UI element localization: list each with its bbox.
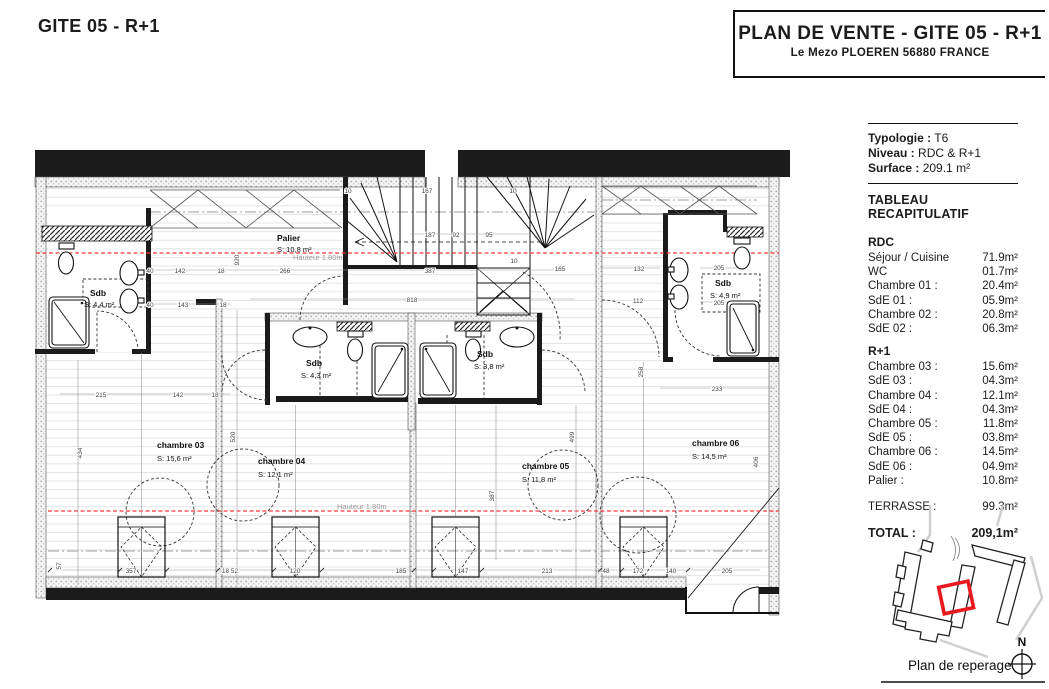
row-value: 01.7m²: [982, 265, 1018, 279]
divider: [868, 123, 1018, 124]
washbasin-icon: [293, 327, 327, 348]
row-label: Séjour / Cuisine: [868, 251, 949, 265]
dim-label: 266: [280, 268, 291, 275]
room-area-sdb3: S: 3,8 m²: [474, 362, 505, 371]
dim-label: 387: [425, 268, 436, 275]
terrace-door-swing: [733, 587, 759, 613]
typology-line: Typologie : T6: [868, 131, 1018, 146]
lintel-hatch: [337, 322, 372, 331]
row-label: Chambre 06 :: [868, 445, 938, 459]
height-note: Hauteur 1.80m: [337, 502, 387, 511]
dim-label: 258: [638, 366, 645, 377]
lintel-hatch: [455, 322, 490, 331]
row-value: 12.1m²: [982, 389, 1018, 403]
room-area-chambre-06: S: 14,5 m²: [692, 452, 727, 461]
dim-label: 40: [146, 302, 154, 309]
closet-hatch: [42, 226, 152, 241]
dim-label: 140: [666, 568, 677, 575]
table-row: Palier :10.8m²: [868, 474, 1018, 488]
table-row: Chambre 01 :20.4m²: [868, 279, 1018, 293]
dim-label: 120: [290, 568, 301, 575]
row-label: WC: [868, 265, 887, 279]
room-area-sdb1: S: 4,4 m²: [84, 300, 115, 309]
toilet-icon: [734, 238, 750, 269]
row-label: SdE 02 :: [868, 322, 912, 336]
dim-label: 18: [217, 268, 225, 275]
dim-label: 165: [555, 266, 566, 273]
rdc-section-title: RDC: [868, 235, 1018, 249]
dim-label: 520: [230, 431, 237, 442]
row-label: SdE 04 :: [868, 403, 912, 417]
room-area-sdb2: S: 4,3 m²: [301, 371, 332, 380]
table-row: SdE 06 :04.9m²: [868, 460, 1018, 474]
room-area-sdb4: S: 4,9 m²: [710, 291, 741, 300]
row-value: 04.3m²: [982, 403, 1018, 417]
table-row: Chambre 06 :14.5m²: [868, 445, 1018, 459]
room-label-sdb2: Sdb: [306, 358, 322, 368]
dim-label: 499: [569, 431, 576, 442]
dim-label: 406: [753, 456, 760, 467]
row-value: 20.8m²: [982, 308, 1018, 322]
row-value: 20.4m²: [982, 279, 1018, 293]
dim-label: 187: [425, 232, 436, 239]
room-area-chambre-03: S: 15,6 m²: [157, 454, 192, 463]
dim-label: 112: [633, 298, 644, 305]
north-compass-icon: [1008, 649, 1036, 679]
dim-label: 434: [77, 447, 84, 458]
dim-label: 143: [178, 302, 189, 309]
shower-icon: [372, 343, 408, 398]
dim-label: 387: [489, 490, 496, 501]
row-value: 04.9m²: [982, 460, 1018, 474]
room-area-chambre-04: S: 12,1 m²: [258, 470, 293, 479]
table-row: SdE 04 :04.3m²: [868, 403, 1018, 417]
dim-label: 18 52: [222, 568, 239, 575]
minimap-buildings: [893, 536, 1025, 642]
row-value: 03.8m²: [982, 431, 1018, 445]
dim-label: 205: [714, 265, 725, 272]
row-label: SdE 01 :: [868, 294, 912, 308]
row-label: Chambre 02 :: [868, 308, 938, 322]
row-label: SdE 06 :: [868, 460, 912, 474]
dim-label: 142: [175, 268, 186, 275]
dim-label: 57: [56, 562, 63, 570]
table-row: Séjour / Cuisine71.9m²: [868, 251, 1018, 265]
room-label-sdb4: Sdb: [715, 278, 731, 288]
row-label: SdE 03 :: [868, 374, 912, 388]
row-value: 05.9m²: [982, 294, 1018, 308]
dim-label: 40: [146, 268, 154, 275]
locator-minimap: N Plan de reperage: [860, 500, 1049, 689]
r1-section-title: R+1: [868, 344, 1018, 358]
dim-label: 132: [634, 266, 645, 273]
dim-label: 147: [458, 568, 469, 575]
dim-label: 215: [96, 392, 107, 399]
room-label-chambre-04: chambre 04: [258, 456, 306, 466]
table-row: Chambre 04 :12.1m²: [868, 389, 1018, 403]
table-row: Chambre 02 :20.8m²: [868, 308, 1018, 322]
plan-de-vente-page: { "page_title": "GITE 05 - R+1", "header…: [0, 0, 1049, 689]
shower-icon: [49, 297, 89, 348]
table-row: SdE 05 :03.8m²: [868, 431, 1018, 445]
height-note: Hauteur 1.80m: [293, 253, 343, 262]
row-label: SdE 05 :: [868, 431, 912, 445]
surface-line: Surface : 209.1 m²: [868, 161, 1018, 176]
table-row: Chambre 05 :11.8m²: [868, 417, 1018, 431]
level-line: Niveau : RDC & R+1: [868, 146, 1018, 161]
dim-label: 213: [542, 568, 553, 575]
dim-label: 48: [602, 568, 610, 575]
washbasin-icon: [500, 327, 534, 348]
level-value: RDC & R+1: [918, 146, 981, 160]
dim-label: 142: [173, 392, 184, 399]
row-label: Chambre 01 :: [868, 279, 938, 293]
row-value: 14.5m²: [982, 445, 1018, 459]
table-row: SdE 01 :05.9m²: [868, 294, 1018, 308]
dim-label: 233: [712, 386, 723, 393]
room-label-chambre-03: chambre 03: [157, 440, 205, 450]
dim-label: 172: [633, 568, 644, 575]
dim-label: 10: [344, 188, 352, 195]
lintel-hatch: [727, 227, 763, 237]
row-label: Palier :: [868, 474, 904, 488]
dim-label: 18: [219, 302, 227, 309]
dim-label: 357: [126, 568, 137, 575]
toilet-icon: [348, 331, 364, 361]
dim-label: 18: [211, 392, 219, 399]
room-label-sdb1: Sdb: [90, 288, 106, 298]
table-row: SdE 03 :04.3m²: [868, 374, 1018, 388]
surface-value: 209.1 m²: [923, 161, 970, 175]
divider: [868, 183, 1018, 184]
room-area-chambre-05: S: 11,8 m²: [522, 475, 557, 484]
room-label-sdb3: Sdb: [477, 349, 493, 359]
dim-label: 10: [510, 258, 518, 265]
row-label: Chambre 05 :: [868, 417, 938, 431]
typology-label: Typologie :: [868, 131, 931, 145]
row-value: 10.8m²: [982, 474, 1018, 488]
room-label-palier: Palier: [277, 233, 301, 243]
room-label-chambre-06: chambre 06: [692, 438, 740, 448]
minimap-caption: Plan de reperage: [908, 658, 1012, 673]
row-value: 04.3m²: [982, 374, 1018, 388]
row-value: 06.3m²: [982, 322, 1018, 336]
row-label: Chambre 03 :: [868, 360, 938, 374]
summary-sidebar: Typologie : T6 Niveau : RDC & R+1 Surfac…: [868, 123, 1018, 540]
shower-icon: [727, 301, 759, 356]
dim-label: 92: [452, 232, 460, 239]
table-row: WC01.7m²: [868, 265, 1018, 279]
surface-label: Surface :: [868, 161, 919, 175]
level-label: Niveau :: [868, 146, 915, 160]
floor-plan-drawing: Palier S: 10,8 m² Hauteur 1.80m Sdb S: 4…: [0, 0, 860, 689]
dim-label: 95: [485, 232, 493, 239]
table-row: Chambre 03 :15.6m²: [868, 360, 1018, 374]
row-value: 11.8m²: [983, 417, 1018, 431]
north-label: N: [1018, 635, 1027, 649]
row-value: 71.9m²: [982, 251, 1018, 265]
dim-label: 205: [722, 568, 733, 575]
dim-label: 10: [509, 188, 517, 195]
dim-label: 920: [234, 254, 241, 265]
row-value: 15.6m²: [982, 360, 1018, 374]
row-label: Chambre 04 :: [868, 389, 938, 403]
dim-label: 205: [714, 300, 725, 307]
room-label-chambre-05: chambre 05: [522, 461, 570, 471]
dim-label: 167: [422, 188, 433, 195]
toilet-icon: [59, 243, 75, 274]
recap-table-title: TABLEAU RECAPITULATIF: [868, 193, 1018, 221]
dim-label: 185: [396, 568, 407, 575]
table-row: SdE 02 :06.3m²: [868, 322, 1018, 336]
dim-label: 818: [407, 297, 418, 304]
typology-value: T6: [934, 131, 948, 145]
shower-icon: [420, 343, 456, 398]
